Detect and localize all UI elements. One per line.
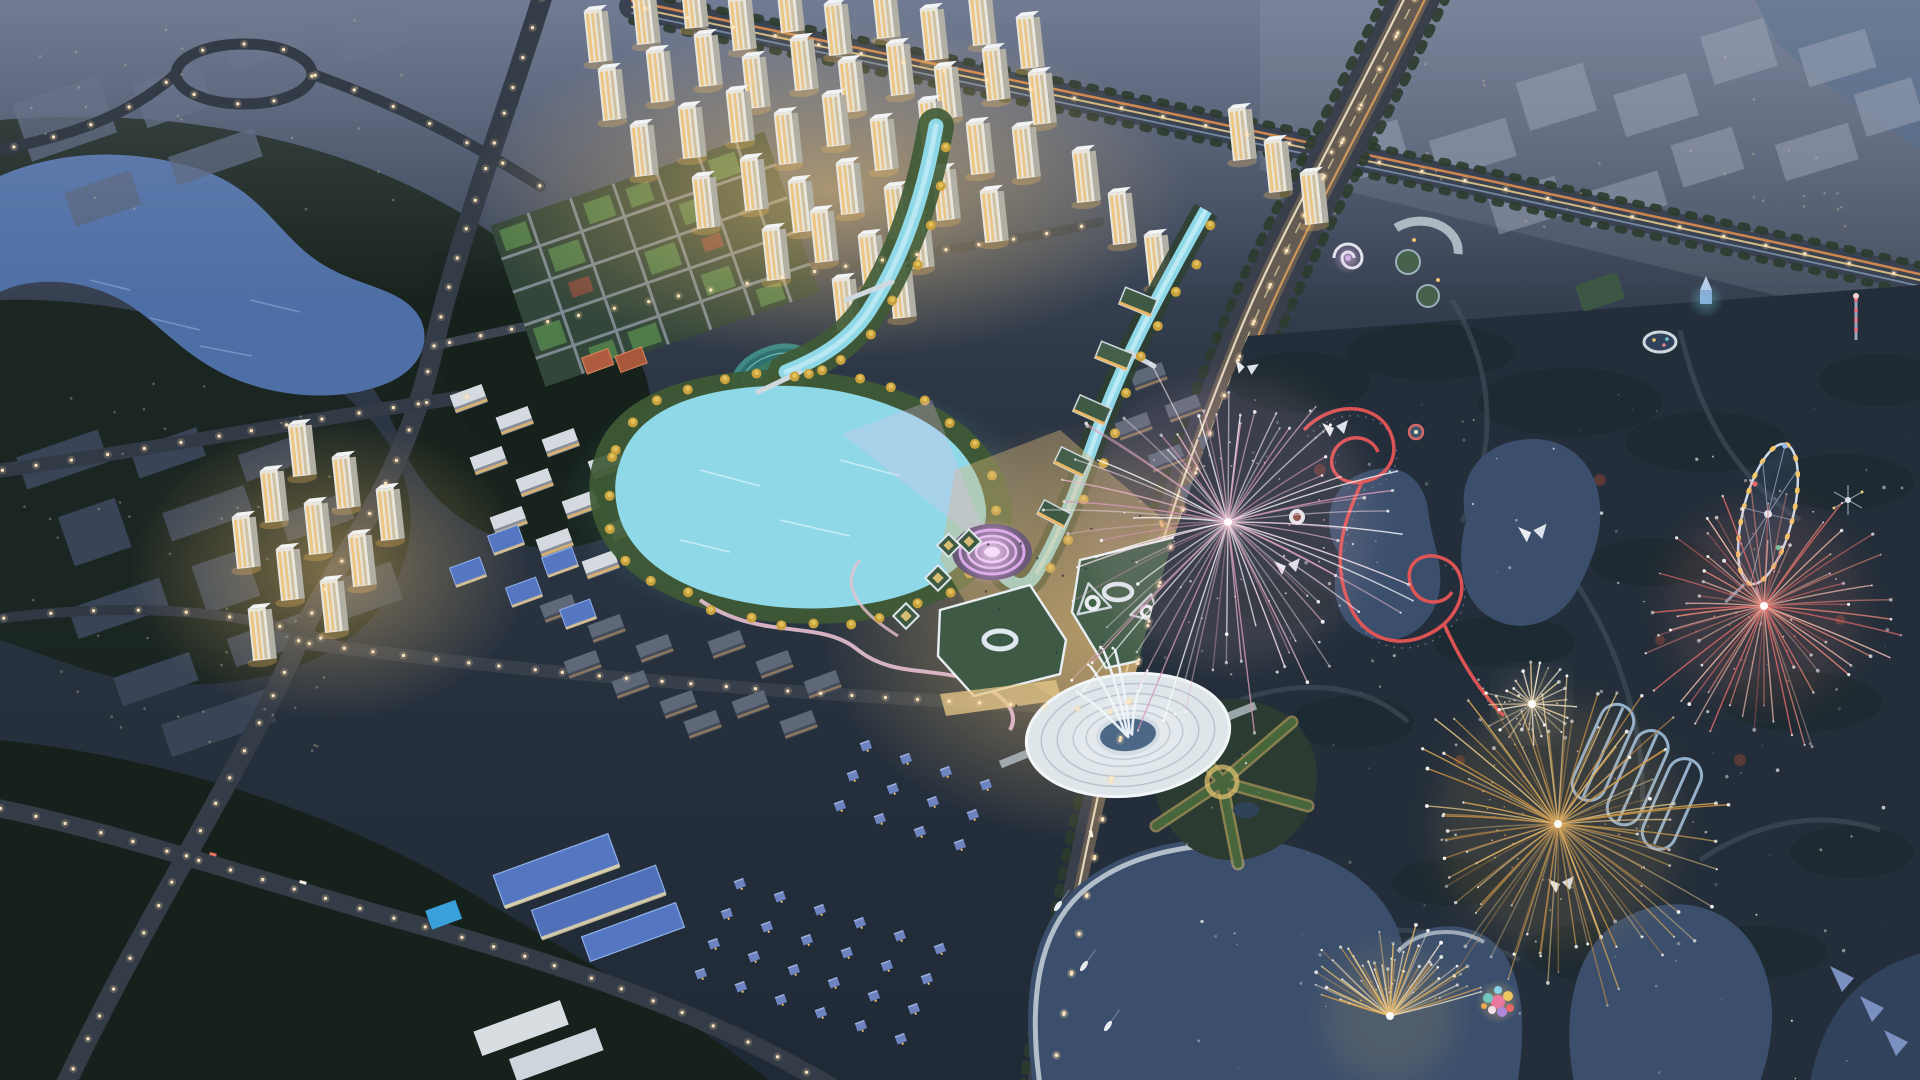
firework-spark	[1306, 680, 1310, 684]
autumn-tree	[913, 260, 923, 270]
window-light	[294, 620, 297, 623]
firework-spark	[1618, 834, 1620, 836]
sparkle	[1773, 497, 1776, 500]
firework-spark	[1540, 735, 1542, 737]
firework-spark	[1091, 661, 1094, 664]
sparkle	[1421, 404, 1422, 405]
firework-spark	[1208, 455, 1210, 457]
firework-spark	[1358, 610, 1361, 613]
sparkle	[1901, 486, 1904, 489]
window-light	[1426, 152, 1429, 155]
street-light	[745, 282, 748, 285]
sparkle	[1371, 659, 1374, 662]
street-light	[479, 334, 482, 337]
street-light	[320, 417, 323, 420]
firework-spark	[1386, 510, 1389, 513]
firework-spark	[1139, 501, 1141, 503]
firework-spark	[1434, 718, 1437, 721]
firework-spark	[1685, 602, 1687, 604]
firework-spark	[1256, 462, 1258, 464]
window-light	[110, 715, 113, 718]
firework-spark	[1687, 702, 1691, 706]
firework-spark	[1480, 987, 1482, 989]
firework-spark	[1840, 529, 1843, 532]
street-light	[1378, 68, 1381, 71]
window-light	[311, 749, 314, 752]
firework-spark	[1772, 721, 1774, 723]
firework-spark	[1529, 660, 1532, 663]
street-light	[1330, 150, 1333, 153]
firework-spark	[1794, 635, 1796, 637]
window-light	[377, 170, 380, 173]
firework-spark	[1402, 951, 1404, 953]
sparkle	[1175, 859, 1176, 860]
window-light	[1803, 205, 1806, 208]
autumn-tree	[720, 374, 730, 384]
firework-spark	[1220, 458, 1222, 460]
street-light	[425, 401, 428, 404]
firework-spark	[1487, 808, 1489, 810]
street-light	[1678, 225, 1681, 228]
firework-spark	[1477, 886, 1479, 888]
firework-spark	[1842, 582, 1845, 585]
sparkle	[1794, 1078, 1796, 1080]
firework-spark	[1707, 532, 1709, 534]
street-light	[1137, 658, 1140, 661]
autumn-tree	[620, 556, 630, 566]
firework-spark	[1557, 680, 1561, 684]
firework-spark	[1225, 661, 1228, 664]
window-light	[1483, 84, 1486, 87]
firework-spark	[1264, 462, 1266, 464]
sparkle	[1779, 490, 1781, 492]
sparkle	[1835, 688, 1838, 691]
window-light	[177, 115, 180, 118]
street-light	[314, 73, 317, 76]
sparkle	[1236, 944, 1237, 945]
firework-spark	[1549, 909, 1551, 911]
street-light	[484, 167, 487, 170]
window-light	[74, 50, 77, 53]
carousel-ride	[1644, 332, 1676, 352]
firework-spark	[1539, 955, 1542, 958]
street-light	[985, 78, 988, 81]
firework-spark	[1669, 629, 1672, 632]
firework-spark	[1367, 960, 1370, 963]
sparkle	[1865, 469, 1868, 472]
firework-spark	[1295, 640, 1297, 642]
street-light	[1062, 1012, 1065, 1015]
street-light	[63, 822, 66, 825]
pedestrian-dot	[1036, 557, 1038, 559]
street-light	[1009, 703, 1012, 706]
firework-spark	[1767, 503, 1769, 505]
firework-spark	[1606, 1004, 1608, 1006]
firework-spark	[1706, 555, 1709, 558]
sparkle	[1462, 439, 1465, 442]
street-light	[1128, 699, 1131, 702]
firework-spark	[1480, 903, 1482, 905]
firework-spark	[1505, 689, 1508, 692]
firework-spark	[1255, 625, 1257, 627]
firework-spark	[1378, 931, 1380, 933]
street-light	[501, 161, 504, 164]
firework-spark	[1708, 691, 1710, 693]
street-light	[217, 434, 220, 437]
firework-spark	[1136, 651, 1138, 653]
firework-spark	[1727, 803, 1730, 806]
autumn-tree	[936, 181, 946, 191]
firework-spark	[1849, 664, 1852, 667]
firework-spark	[1189, 467, 1191, 469]
sparkle	[1496, 458, 1497, 459]
street-light	[185, 854, 188, 857]
street-light	[1, 469, 4, 472]
sparkle	[1242, 753, 1244, 755]
firework-spark	[1810, 653, 1813, 656]
firework-spark	[1409, 986, 1411, 988]
street-light	[293, 887, 296, 890]
autumn-tree	[646, 576, 656, 586]
autumn-tree	[1153, 321, 1163, 331]
firework-spark	[1680, 700, 1682, 702]
autumn-tree	[945, 418, 955, 428]
sparkle	[1819, 848, 1822, 851]
street-light	[434, 658, 437, 661]
street-light	[199, 829, 202, 832]
street-light	[402, 654, 405, 657]
street-light	[1045, 232, 1048, 235]
street-light	[1420, 170, 1423, 173]
window-light	[32, 599, 35, 602]
window-light	[49, 518, 52, 521]
street-light	[947, 700, 950, 703]
firework-spark	[1227, 391, 1230, 394]
firework-spark	[1673, 936, 1675, 938]
sparkle	[1455, 743, 1458, 746]
firework-spark	[1377, 985, 1379, 987]
firework-spark	[1341, 978, 1343, 980]
window-light	[23, 505, 26, 508]
firework-spark	[1360, 980, 1362, 982]
sparkle	[1714, 883, 1717, 886]
window-light	[1823, 192, 1826, 195]
window-light	[266, 558, 269, 561]
firework-spark	[1645, 652, 1647, 654]
street-light	[709, 288, 712, 291]
street-light	[71, 1067, 74, 1070]
sparkle	[1692, 821, 1694, 823]
street-light	[340, 559, 343, 562]
firework-spark	[1253, 410, 1257, 414]
street-light	[310, 611, 313, 614]
street-light	[128, 957, 131, 960]
firework-spark	[1150, 362, 1152, 364]
street-light	[112, 987, 115, 990]
firework-spark	[1751, 661, 1753, 663]
window-light	[1762, 199, 1765, 202]
street-light	[1341, 138, 1344, 141]
firework-spark	[1778, 571, 1780, 573]
street-light	[2, 616, 5, 619]
firework-spark	[1340, 476, 1342, 478]
sparkle	[1706, 710, 1709, 713]
firework-spark	[1706, 517, 1709, 520]
window-light	[1753, 196, 1756, 199]
street-light	[423, 925, 426, 928]
street-light	[523, 955, 526, 958]
window-light	[299, 415, 302, 418]
street-light	[1245, 133, 1248, 136]
firework-spark	[1628, 755, 1632, 759]
firework-spark	[1315, 406, 1317, 408]
street-light	[510, 327, 513, 330]
firework-spark	[1741, 543, 1743, 545]
window-light	[1836, 192, 1839, 195]
firework-spark	[1570, 720, 1574, 724]
sparkle	[1302, 934, 1303, 935]
firework-spark	[1370, 997, 1372, 999]
autumn-tree	[836, 355, 846, 365]
window-light	[263, 708, 266, 711]
window-light	[44, 133, 47, 136]
window-light	[313, 744, 316, 747]
firework-spark	[1306, 595, 1308, 597]
street-light	[428, 122, 431, 125]
sparkle	[1173, 713, 1176, 716]
pedestrian-dot	[1020, 542, 1022, 544]
sparkle	[1429, 481, 1430, 482]
firework-spark	[1664, 749, 1667, 752]
firework-spark	[1434, 987, 1436, 989]
street-light	[647, 300, 650, 303]
firework-spark	[1488, 704, 1490, 706]
sparkle	[1472, 503, 1474, 505]
autumn-tree	[706, 605, 716, 615]
window-light	[236, 506, 239, 509]
firework-spark	[1418, 965, 1421, 968]
street-light	[12, 145, 15, 148]
firework-spark	[1847, 673, 1850, 676]
street-light	[1093, 857, 1096, 860]
firework-spark	[1733, 668, 1735, 670]
autumn-tree	[605, 524, 615, 534]
firework-spark	[1225, 632, 1229, 636]
firework-spark	[1288, 524, 1290, 526]
sparkle	[1906, 438, 1907, 439]
firework-spark	[1497, 708, 1500, 711]
street-light	[1085, 894, 1088, 897]
firework-spark	[1475, 912, 1477, 914]
firework-spark	[1466, 851, 1468, 853]
street-light	[89, 123, 92, 126]
street-light	[1101, 818, 1104, 821]
firework-spark	[1336, 539, 1339, 542]
window-light	[60, 670, 63, 673]
firework-spark	[1240, 578, 1242, 580]
firework-spark	[1498, 728, 1501, 731]
street-light	[243, 749, 246, 752]
sparkle	[1258, 792, 1260, 794]
street-light	[553, 964, 556, 967]
firework-spark	[1788, 543, 1792, 547]
firework-spark	[1791, 734, 1793, 736]
firework-spark	[1072, 600, 1075, 603]
firework-spark	[1062, 500, 1065, 503]
street-light	[308, 642, 311, 645]
autumn-tree	[946, 588, 956, 598]
window-light	[1787, 149, 1790, 152]
firework-spark	[1496, 829, 1498, 831]
firework-spark	[1615, 946, 1617, 948]
firework-spark	[1575, 706, 1577, 708]
firework-spark	[1153, 459, 1155, 461]
sparkle	[1318, 953, 1322, 957]
firework-spark	[1515, 680, 1517, 682]
window-light	[1543, 225, 1546, 228]
firework-spark	[1511, 867, 1513, 869]
firework-spark	[1425, 804, 1429, 808]
sparkle	[1695, 458, 1698, 461]
street-light	[746, 1040, 749, 1043]
street-light	[426, 370, 429, 373]
firework-spark	[1412, 600, 1414, 602]
street-light	[776, 1055, 779, 1058]
street-light	[278, 625, 281, 628]
street-light	[214, 802, 217, 805]
autumn-tree	[652, 395, 662, 405]
firework-spark	[1560, 898, 1562, 900]
firework-spark	[1556, 703, 1558, 705]
firework-spark	[1571, 887, 1573, 889]
firework-spark	[1752, 728, 1756, 732]
firework-spark	[1428, 961, 1431, 964]
street-light	[98, 1014, 101, 1017]
street-light	[1631, 215, 1634, 218]
street-light	[915, 253, 918, 256]
window-light	[76, 690, 79, 693]
firework-spark	[1517, 858, 1519, 860]
sparkle	[1318, 641, 1321, 644]
firework-spark	[1512, 953, 1515, 956]
sparkle	[1814, 408, 1815, 409]
firework-spark	[1456, 965, 1459, 968]
firework-spark	[1159, 434, 1162, 437]
spiral-tower	[1332, 242, 1364, 274]
firework-spark	[1363, 496, 1367, 500]
window-light	[305, 208, 308, 211]
firework-spark	[1407, 583, 1411, 587]
firework-spark	[1443, 857, 1446, 860]
sparkle	[1846, 1060, 1847, 1061]
street-light	[465, 395, 468, 398]
firework-spark	[1074, 458, 1076, 460]
firework-spark	[1558, 971, 1560, 973]
street-light	[977, 243, 980, 246]
window-light	[1440, 178, 1443, 181]
street-light	[732, 25, 735, 28]
street-light	[352, 88, 355, 91]
firework-spark	[1320, 949, 1322, 951]
street-light	[201, 48, 204, 51]
firework-spark	[1630, 792, 1632, 794]
firework-spark	[1173, 540, 1175, 542]
autumn-tree	[809, 619, 819, 629]
firework-spark	[1586, 943, 1589, 946]
street-light	[773, 34, 776, 37]
window-light	[1724, 56, 1727, 59]
firework-spark	[1494, 764, 1496, 766]
street-light	[52, 135, 55, 138]
street-light	[1109, 710, 1112, 713]
firework-spark	[1647, 825, 1649, 827]
firework-spark	[1386, 967, 1389, 970]
window-light	[1424, 63, 1427, 66]
firework-spark	[1752, 533, 1754, 535]
firework-spark	[1880, 554, 1882, 556]
window-light	[119, 501, 122, 504]
street-light	[34, 815, 37, 818]
firework-spark	[1439, 955, 1443, 959]
street-light	[1012, 237, 1015, 240]
sparkle	[1824, 929, 1827, 932]
firework-spark	[1602, 750, 1604, 752]
firework-core	[1554, 820, 1562, 828]
firework-spark	[1636, 832, 1639, 835]
firework-spark	[1521, 669, 1525, 673]
firework-spark	[1648, 797, 1652, 801]
street-light	[660, 680, 663, 683]
street-light	[534, 668, 537, 671]
firework-spark	[1133, 517, 1135, 519]
sparkle	[1423, 904, 1425, 906]
street-light	[392, 916, 395, 919]
sparkle	[1197, 1040, 1200, 1043]
street-light	[185, 611, 188, 614]
sparkle	[1682, 737, 1683, 738]
firework-spark	[1713, 615, 1715, 617]
street-light	[538, 184, 541, 187]
window-light	[202, 710, 205, 713]
firework-spark	[1565, 698, 1568, 701]
firework-spark	[1615, 691, 1618, 694]
street-light	[1055, 1054, 1058, 1057]
street-light	[70, 458, 73, 461]
window-light	[164, 427, 167, 430]
firework-spark	[1719, 655, 1721, 657]
window-light	[392, 199, 395, 202]
autumn-tree	[683, 385, 693, 395]
sparkle	[1882, 486, 1886, 490]
street-light	[598, 674, 601, 677]
street-light	[652, 999, 655, 1002]
street-light	[1076, 707, 1079, 710]
street-light	[432, 344, 435, 347]
firework-spark	[1740, 507, 1744, 511]
street-light	[916, 698, 919, 701]
firework-spark	[1180, 586, 1182, 588]
street-light	[228, 776, 231, 779]
street-light	[1077, 932, 1080, 935]
street-light	[258, 721, 261, 724]
window-light	[94, 196, 97, 199]
window-light	[181, 47, 184, 50]
window-light	[39, 55, 42, 58]
sparkle	[1508, 566, 1511, 569]
sparkle	[1376, 562, 1378, 564]
sparkle	[1615, 530, 1618, 533]
street-light	[1892, 272, 1895, 275]
